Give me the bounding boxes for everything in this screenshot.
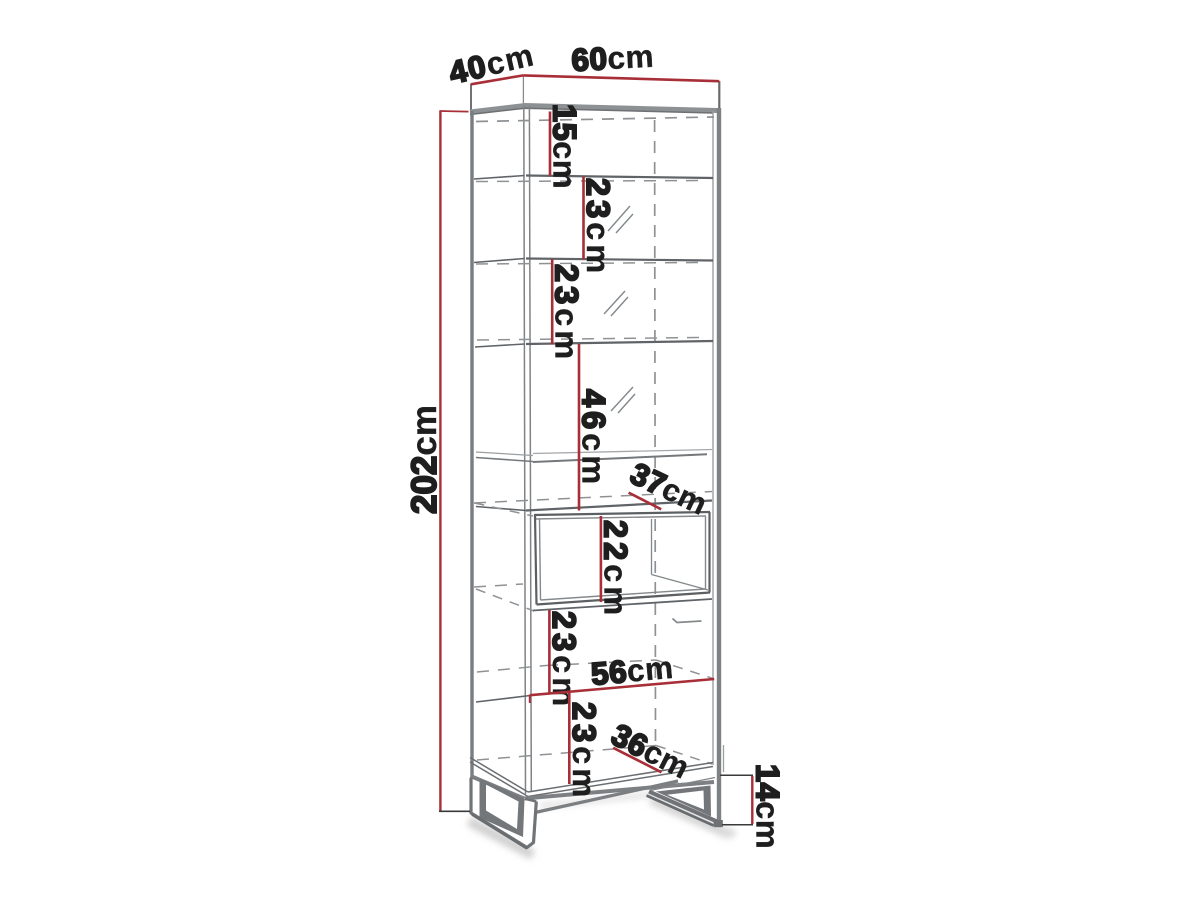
svg-text:60cm: 60cm <box>570 38 654 78</box>
svg-text:23cm: 23cm <box>580 178 616 277</box>
svg-text:46cm: 46cm <box>576 389 612 488</box>
svg-text:202cm: 202cm <box>405 405 444 514</box>
svg-text:56cm: 56cm <box>589 649 674 692</box>
svg-text:36cm: 36cm <box>606 716 696 786</box>
svg-text:15cm: 15cm <box>547 104 583 189</box>
svg-text:22cm: 22cm <box>597 520 633 619</box>
svg-text:14cm: 14cm <box>750 764 786 849</box>
svg-text:23cm: 23cm <box>546 611 582 710</box>
svg-text:23cm: 23cm <box>566 702 602 801</box>
